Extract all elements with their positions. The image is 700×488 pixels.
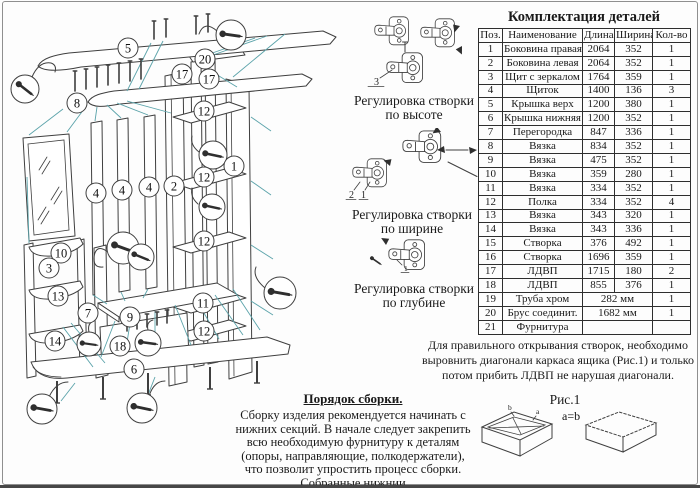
table-cell: 1: [479, 42, 503, 56]
table-cell: 1: [653, 292, 691, 306]
table-cell: Вязка: [503, 167, 583, 181]
table-cell: 352: [615, 42, 653, 56]
part-callout: 12: [194, 167, 214, 187]
column-header: Ширина: [615, 29, 653, 43]
table-cell: 1: [653, 154, 691, 168]
table-cell: 1: [653, 209, 691, 223]
column-header: Наименование: [503, 29, 583, 43]
table-cell: Вязка: [503, 209, 583, 223]
table-cell: 376: [615, 279, 653, 293]
column-header: Поз.: [479, 29, 503, 43]
table-cell: 336: [615, 223, 653, 237]
table-row: 4Щиток14001363: [479, 84, 691, 98]
table-cell: 352: [615, 181, 653, 195]
diagonal-note: Для правильного открывания створок, необ…: [418, 338, 698, 383]
part-callout: 8: [67, 93, 87, 113]
part-callout: 14: [45, 331, 65, 351]
table-cell: Щиток: [503, 84, 583, 98]
screw-detail-callout: [199, 194, 225, 220]
table-cell: 359: [583, 167, 615, 181]
part-callout-label: 2: [171, 180, 177, 194]
table-cell: 1: [653, 251, 691, 265]
part-callout: 4: [86, 183, 106, 203]
table-cell: 1682 мм: [583, 306, 653, 320]
screw-detail-callout: [199, 141, 227, 169]
caption-height: Регулировка створки по высоте: [350, 94, 478, 122]
table-cell: 359: [615, 251, 653, 265]
table-cell: Фурнитура: [503, 320, 583, 334]
table-cell: Крышка верх: [503, 98, 583, 112]
hinge-illustration-width: 2 1: [344, 128, 480, 206]
table-cell: 1: [653, 98, 691, 112]
table-cell: 14: [479, 223, 503, 237]
table-row: 12Полка3343524: [479, 195, 691, 209]
table-row: 10Вязка3592801: [479, 167, 691, 181]
table-cell: 4: [479, 84, 503, 98]
part-callout-label: 7: [85, 307, 91, 321]
part-callout: 7: [78, 303, 98, 323]
table-cell: 282 мм: [583, 292, 653, 306]
part-callout-label: 17: [176, 68, 189, 82]
table-cell: 1: [653, 56, 691, 70]
table-cell: Створка: [503, 237, 583, 251]
caption-width: Регулировка створки по ширине: [344, 208, 480, 236]
table-cell: 1400: [583, 84, 615, 98]
part-callout-label: 3: [46, 262, 52, 276]
table-row: 17ЛДВП17151802: [479, 265, 691, 279]
table-row: 7Перегородка8473361: [479, 126, 691, 140]
part-callout: 1: [224, 156, 244, 176]
part-callout-label: 4: [93, 187, 100, 201]
table-cell: 352: [615, 154, 653, 168]
table-cell: 4: [653, 195, 691, 209]
part-callout-label: 12: [198, 171, 211, 185]
table-cell: Брус соединит.: [503, 306, 583, 320]
table-cell: Перегородка: [503, 126, 583, 140]
table-cell: 7: [479, 126, 503, 140]
part-callout: 17: [172, 64, 192, 84]
table-cell: Полка: [503, 195, 583, 209]
screw-detail-callout: [127, 393, 157, 423]
leader-line: [107, 105, 121, 118]
table-header-row: Поз.НаименованиеДлинаШиринаКол-во: [479, 29, 691, 43]
column-header: Длина: [583, 29, 615, 43]
part-callout-label: 9: [127, 311, 133, 325]
table-cell: 2064: [583, 42, 615, 56]
part-callout: 5: [118, 38, 138, 58]
detail-connector: [149, 381, 165, 396]
table-cell: 2: [653, 265, 691, 279]
table-cell: 3: [479, 70, 503, 84]
table-cell: 180: [615, 265, 653, 279]
part-callout-label: 12: [198, 235, 211, 249]
table-cell: 334: [583, 195, 615, 209]
leader-line: [251, 181, 271, 195]
cabinet-panels: [23, 31, 336, 386]
leader-line: [251, 245, 273, 259]
table-cell: [583, 320, 653, 334]
table-cell: 352: [615, 140, 653, 154]
leader-line: [117, 103, 148, 115]
leader-line: [251, 117, 271, 131]
table-cell: 320: [615, 209, 653, 223]
table-cell: Щит с зеркалом: [503, 70, 583, 84]
table-cell: 855: [583, 279, 615, 293]
table-cell: 1: [653, 112, 691, 126]
table-cell: 10: [479, 167, 503, 181]
table-row: 11Вязка3343521: [479, 181, 691, 195]
table-cell: 1200: [583, 112, 615, 126]
table-row: 16Створка16963591: [479, 251, 691, 265]
table-cell: 334: [583, 181, 615, 195]
leader-line: [95, 107, 97, 121]
part-callout-label: 5: [125, 42, 131, 56]
column-header: Кол-во: [653, 29, 691, 43]
table-cell: 1: [653, 42, 691, 56]
part-callout-label: 14: [49, 335, 62, 349]
table-row: 5Крышка верх12003801: [479, 98, 691, 112]
part-callout-label: 1: [231, 160, 237, 174]
table-cell: 359: [615, 70, 653, 84]
table-cell: 11: [479, 181, 503, 195]
table-row: 2Боковина левая20643521: [479, 56, 691, 70]
table-row: 1Боковина правая20643521: [479, 42, 691, 56]
box-with-ldvp: [586, 412, 656, 452]
table-cell: Труба хром: [503, 292, 583, 306]
table-cell: 352: [615, 112, 653, 126]
table-cell: 20: [479, 306, 503, 320]
table-cell: 2: [479, 56, 503, 70]
table-cell: 1: [653, 126, 691, 140]
table-cell: 1764: [583, 70, 615, 84]
table-cell: 18: [479, 279, 503, 293]
hinge-illustration-height: 3: [350, 12, 480, 94]
part-callout-label: 12: [198, 105, 211, 119]
table-row: 14Вязка3433361: [479, 223, 691, 237]
table-cell: 336: [615, 126, 653, 140]
table-cell: 352: [615, 56, 653, 70]
table-cell: ЛДВП: [503, 279, 583, 293]
part-callout: 18: [110, 336, 130, 356]
assembly-instruction-sheet: 52017178121122444121031311791214186 3 Ре…: [0, 0, 700, 488]
table-cell: 847: [583, 126, 615, 140]
caption-depth: Регулировка створки по глубине: [348, 282, 480, 310]
part-callout-label: 18: [114, 340, 127, 354]
part-callout: 3: [39, 258, 59, 278]
part-callout-label: 20: [199, 53, 212, 67]
table-cell: 280: [615, 167, 653, 181]
screw-detail-callout: [128, 244, 154, 270]
left-unit-side: [24, 243, 36, 378]
part-callout-label: 17: [203, 73, 216, 87]
part-callout: 17: [199, 69, 219, 89]
part-callout: 20: [195, 49, 215, 69]
table-row: 15Створка3764921: [479, 237, 691, 251]
table-row: 19Труба хром282 мм1: [479, 292, 691, 306]
part-callout: 9: [120, 307, 140, 327]
table-cell: 376: [583, 237, 615, 251]
table-cell: 1: [653, 237, 691, 251]
table-cell: 475: [583, 154, 615, 168]
table-row: 21Фурнитура: [479, 320, 691, 334]
table-cell: 13: [479, 209, 503, 223]
table-row: 6Крышка нижняя12003521: [479, 112, 691, 126]
table-cell: 1: [653, 167, 691, 181]
part-callout-label: 4: [146, 181, 153, 195]
table-row: 13Вязка3433201: [479, 209, 691, 223]
parts-table: Поз.НаименованиеДлинаШиринаКол-во 1Боков…: [478, 28, 691, 335]
table-cell: 1: [653, 70, 691, 84]
table-cell: 16: [479, 251, 503, 265]
table-cell: 9: [479, 154, 503, 168]
leader-line: [61, 383, 75, 401]
table-row: 18ЛДВП8553761: [479, 279, 691, 293]
part-callout-label: 6: [131, 363, 137, 377]
table-cell: 1: [653, 140, 691, 154]
part-callout: 12: [194, 231, 214, 251]
table-cell: 1: [653, 306, 691, 320]
hinge-illustration-depth: 1: [348, 237, 476, 283]
leader-line: [127, 101, 171, 113]
table-cell: 834: [583, 140, 615, 154]
screw-detail-callout: [27, 394, 57, 424]
table-cell: 1715: [583, 265, 615, 279]
table-cell: 343: [583, 223, 615, 237]
table-cell: 380: [615, 98, 653, 112]
screw-detail-callout: [264, 277, 296, 309]
part-callout: 2: [164, 176, 184, 196]
part-callout: 6: [124, 359, 144, 379]
part-callout: 4: [112, 180, 132, 200]
table-cell: Створка: [503, 251, 583, 265]
part-callout-label: 12: [198, 325, 211, 339]
side-panel-right: [226, 79, 252, 379]
part-callout: 11: [193, 293, 213, 313]
table-cell: Вязка: [503, 154, 583, 168]
table-cell: 17: [479, 265, 503, 279]
table-row: 8Вязка8343521: [479, 140, 691, 154]
part-callout-label: 13: [52, 290, 65, 304]
part-callout-label: 10: [55, 247, 68, 261]
table-cell: Вязка: [503, 140, 583, 154]
table-cell: 1: [653, 223, 691, 237]
table-cell: Боковина правая: [503, 42, 583, 56]
diagonal-label: a: [536, 407, 540, 416]
table-cell: 3: [653, 84, 691, 98]
table-cell: 136: [615, 84, 653, 98]
part-callout-label: 4: [119, 184, 126, 198]
parts-table-title: Комплектация деталей: [478, 9, 690, 26]
part-callout-label: 8: [74, 97, 80, 111]
screw-detail-callout: [11, 75, 39, 103]
part-callout: 4: [139, 177, 159, 197]
table-cell: 15: [479, 237, 503, 251]
table-row: 9Вязка4753521: [479, 154, 691, 168]
table-cell: 352: [615, 195, 653, 209]
table-cell: Вязка: [503, 223, 583, 237]
table-cell: 1: [653, 181, 691, 195]
table-cell: 21: [479, 320, 503, 334]
table-cell: 343: [583, 209, 615, 223]
assembly-order-body: Сборку изделия рекомендуется начинать с …: [233, 409, 473, 488]
figure1-drawing: b a a=b: [478, 403, 678, 463]
leader-line: [29, 109, 63, 135]
hinge-part-label: 1: [404, 264, 408, 273]
part-callout: 12: [194, 321, 214, 341]
table-cell: Боковина левая: [503, 56, 583, 70]
table-cell: [653, 320, 691, 334]
part-callout: 13: [48, 286, 68, 306]
assembly-order-block: Порядок сборки. Сборку изделия рекоменду…: [233, 391, 473, 488]
top-shelf-panel: [38, 31, 336, 70]
table-cell: 19: [479, 292, 503, 306]
detail-connector: [255, 267, 265, 288]
table-row: 3Щит с зеркалом17643591: [479, 70, 691, 84]
table-cell: 1200: [583, 98, 615, 112]
table-cell: 1696: [583, 251, 615, 265]
table-cell: 2064: [583, 56, 615, 70]
table-cell: ЛДВП: [503, 265, 583, 279]
equation-label: a=b: [562, 409, 580, 423]
screw-detail-callout: [135, 330, 161, 356]
detail-connector: [49, 382, 68, 397]
part-callout: 12: [194, 101, 214, 121]
table-cell: 492: [615, 237, 653, 251]
table-cell: 5: [479, 98, 503, 112]
table-cell: Крышка нижняя: [503, 112, 583, 126]
diagonal-label: b: [508, 403, 512, 412]
box-with-diagonals: b a: [482, 403, 552, 456]
table-cell: 12: [479, 195, 503, 209]
exploded-view-drawing: 52017178121122444121031311791214186: [5, 5, 355, 435]
part-callout-label: 11: [197, 297, 209, 311]
screw-detail-callout: [216, 20, 246, 50]
table-cell: Вязка: [503, 181, 583, 195]
table-cell: 6: [479, 112, 503, 126]
slat-panel: [117, 118, 130, 292]
table-cell: 1: [653, 279, 691, 293]
table-row: 20Брус соединит.1682 мм1: [479, 306, 691, 320]
screw-detail-callout: [77, 332, 101, 356]
assembly-order-title: Порядок сборки.: [233, 391, 473, 407]
table-cell: 8: [479, 140, 503, 154]
